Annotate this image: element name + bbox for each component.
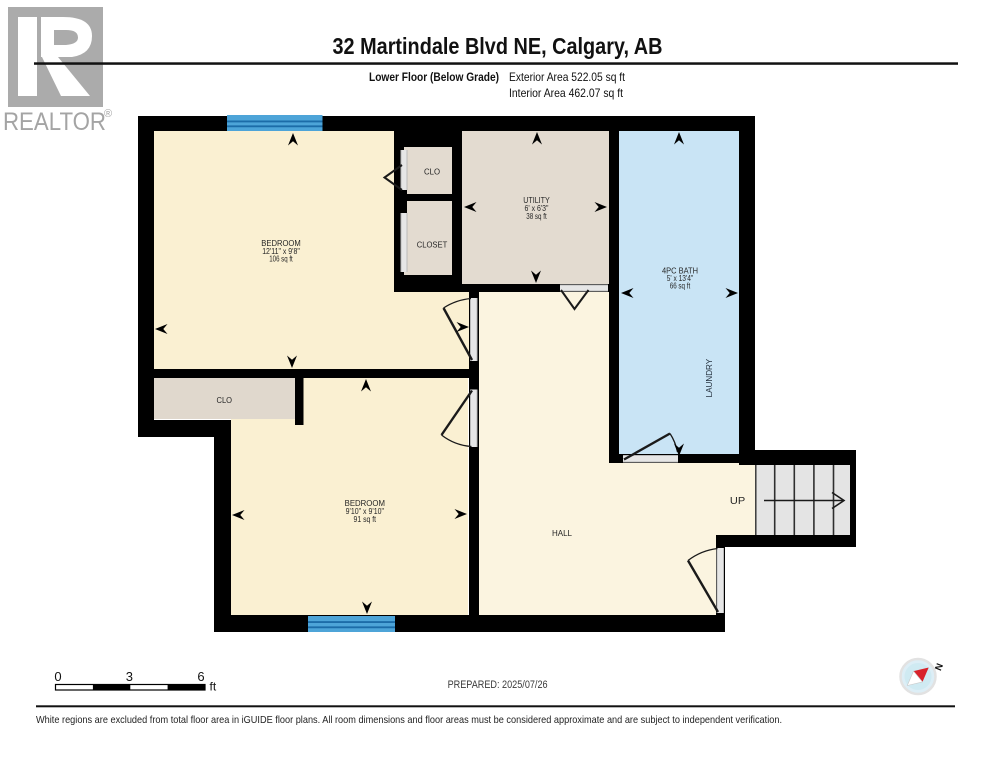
svg-text:UP: UP xyxy=(730,496,746,507)
svg-text:PREPARED: 2025/07/26: PREPARED: 2025/07/26 xyxy=(448,679,548,691)
svg-text:®: ® xyxy=(104,108,112,120)
svg-text:White regions are excluded fro: White regions are excluded from total fl… xyxy=(36,714,782,726)
svg-text:38 sq ft: 38 sq ft xyxy=(526,212,547,221)
svg-text:3: 3 xyxy=(126,669,133,684)
svg-text:CLO: CLO xyxy=(217,396,233,405)
svg-text:ft: ft xyxy=(210,680,217,694)
svg-text:Interior Area 462.07 sq ft: Interior Area 462.07 sq ft xyxy=(509,86,624,100)
svg-text:REALTOR: REALTOR xyxy=(3,108,106,136)
svg-text:CLO: CLO xyxy=(424,168,440,177)
svg-text:32 Martindale Blvd NE, Calgary: 32 Martindale Blvd NE, Calgary, AB xyxy=(333,33,663,59)
svg-text:6: 6 xyxy=(197,669,204,684)
svg-text:Exterior Area 522.05 sq ft: Exterior Area 522.05 sq ft xyxy=(509,70,626,84)
svg-text:106 sq ft: 106 sq ft xyxy=(269,255,293,264)
svg-text:66 sq ft: 66 sq ft xyxy=(670,281,691,290)
svg-text:0: 0 xyxy=(54,669,61,684)
svg-text:Lower Floor (Below Grade): Lower Floor (Below Grade) xyxy=(369,70,499,84)
svg-text:91 sq ft: 91 sq ft xyxy=(354,515,377,524)
svg-text:HALL: HALL xyxy=(552,528,572,538)
svg-text:LAUNDRY: LAUNDRY xyxy=(704,359,714,398)
svg-text:CLOSET: CLOSET xyxy=(417,239,448,249)
